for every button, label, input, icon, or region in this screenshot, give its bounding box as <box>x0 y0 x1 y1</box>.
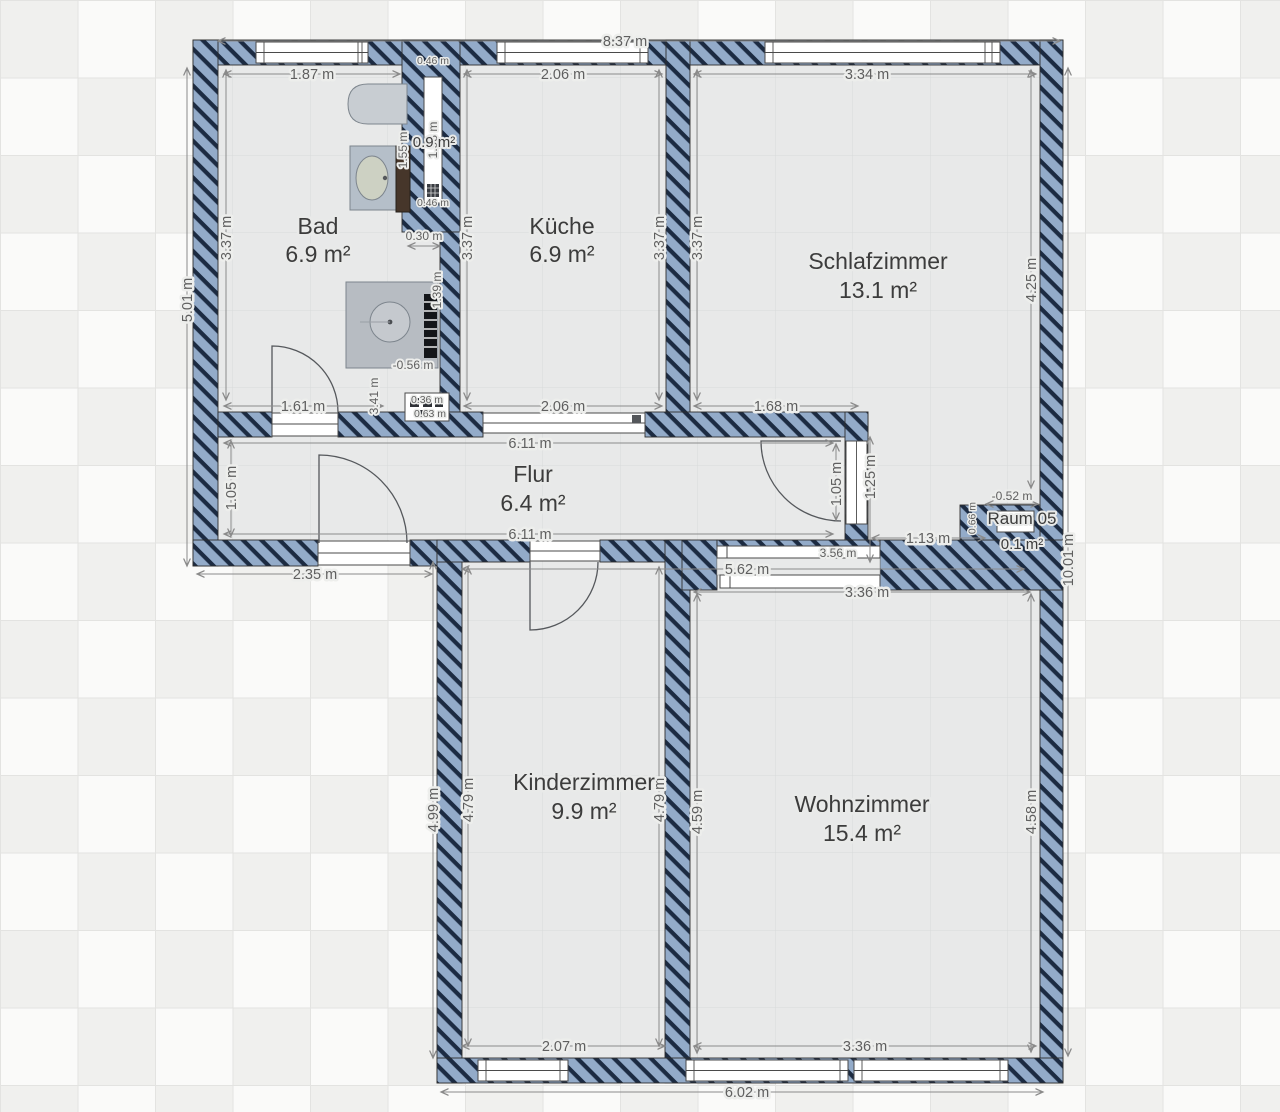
wall-left[interactable] <box>193 40 218 566</box>
dim-shaft-bottom: 0.46 m <box>417 197 449 209</box>
dim-schlaf-right: 4.25 m <box>1024 258 1040 302</box>
dim-kueche-right: 3.37 m <box>652 216 668 260</box>
wall-entry-1[interactable] <box>193 540 318 566</box>
dim-niche-a: 0.36 m <box>411 394 443 406</box>
washbasin[interactable] <box>350 146 398 210</box>
room-schlafzimmer-name: Schlafzimmer <box>808 248 948 274</box>
room-schlafzimmer-area: 13.1 m² <box>839 277 917 303</box>
dim-niche-offset: 0.30 m <box>406 229 443 243</box>
dim-overall-right: 10.01 m <box>1061 534 1077 586</box>
opening-entrance[interactable] <box>318 541 410 565</box>
dim-bad-left: 3.37 m <box>219 216 235 260</box>
wall-flur-top-1[interactable] <box>218 412 272 437</box>
dim-kinder-outer: 4.99 m <box>426 788 442 832</box>
dim-bad-niche: 3.41 m <box>367 378 381 415</box>
dim-raum05-left: 0.66 m <box>967 502 979 534</box>
dim-wohn-left: 4.59 m <box>690 790 706 834</box>
dim-kueche-left: 3.37 m <box>460 216 476 260</box>
floorplan-canvas: 8.37 m 1.87 m 2.06 m 3.34 m 1.61 m 2.06 … <box>0 0 1280 1112</box>
dim-schlaf-top: 3.34 m <box>845 67 889 83</box>
dim-raum05-top: -0.52 m <box>992 489 1033 503</box>
dim-bad-bottom: 1.61 m <box>281 399 325 415</box>
vent-grille-icon <box>427 184 439 197</box>
dim-slider: 3.56 m <box>820 546 857 560</box>
room-kueche-name: Küche <box>529 213 594 239</box>
room-wohnzimmer-area: 15.4 m² <box>823 820 901 846</box>
dim-slider-total: 5.62 m <box>725 562 769 578</box>
dim-right-pass: 1.13 m <box>906 531 950 547</box>
dim-entry-left: 2.35 m <box>293 567 337 583</box>
wall-flur-top-3[interactable] <box>645 412 868 437</box>
dim-kueche-bottom: 2.06 m <box>541 399 585 415</box>
room-raum05-area: 0.1 m² <box>1001 536 1044 553</box>
room-wohnzimmer-name: Wohnzimmer <box>794 791 929 817</box>
dim-kueche-top: 2.06 m <box>541 67 585 83</box>
dim-bad-fixture: 1.55 m <box>396 132 410 169</box>
room-schacht-area: 0.9 m² <box>413 134 456 151</box>
dim-kinder-left: 4.79 m <box>461 778 477 822</box>
window-kueche-bottom[interactable] <box>483 413 645 433</box>
floorplan-drawing: 8.37 m 1.87 m 2.06 m 3.34 m 1.61 m 2.06 … <box>0 0 1280 1112</box>
wall-wohn-top-left[interactable] <box>682 540 717 590</box>
dim-wohn-right: 4.58 m <box>1024 790 1040 834</box>
dim-wohn-bottom: 3.36 m <box>843 1039 887 1055</box>
dim-schlaf-left: 3.37 m <box>690 216 706 260</box>
window-wohnzimmer-2[interactable] <box>854 1060 1008 1081</box>
dim-bad-top: 1.87 m <box>290 67 334 83</box>
dim-overall-top: 8.37 m <box>603 34 647 50</box>
room-flur-name: Flur <box>513 461 553 487</box>
wall-kueche-schlaf[interactable] <box>666 40 690 437</box>
dim-kinder-bottom: 2.07 m <box>542 1039 586 1055</box>
room-flur-area: 6.4 m² <box>500 490 566 516</box>
opening-kinderzimmer[interactable] <box>530 541 600 561</box>
window-bad[interactable] <box>256 42 368 63</box>
dim-shower-width: -0.56 m <box>393 358 434 372</box>
bathtub[interactable] <box>348 84 407 124</box>
dim-wohn-top: 3.36 m <box>845 585 889 601</box>
dim-niche-b: 0.63 m <box>414 408 446 420</box>
dim-overall-bottom: 6.02 m <box>725 1085 769 1101</box>
dim-flur-bottom: 6.11 m <box>508 527 551 543</box>
window-schlafzimmer[interactable] <box>765 42 1000 63</box>
window-kinderzimmer[interactable] <box>478 1060 568 1081</box>
room-bad-area: 6.9 m² <box>285 241 351 267</box>
dim-outer-left: 5.01 m <box>180 278 196 322</box>
dim-niche-height: 1.39 m <box>430 272 444 309</box>
dim-flur-door: 1.25 m <box>863 455 879 499</box>
window-wohnzimmer-1[interactable] <box>686 1060 848 1081</box>
room-raum05-name: Raum 05 <box>988 509 1057 528</box>
wall-bad-kueche[interactable] <box>440 232 460 412</box>
dim-flur-left: 1.05 m <box>224 466 240 510</box>
dim-schlaf-bottom: 1.68 m <box>754 399 798 415</box>
room-bad-name: Bad <box>298 213 339 239</box>
dim-flur-top: 6.11 m <box>508 436 551 452</box>
room-schacht[interactable]: 0.9 m² <box>413 134 456 151</box>
room-kueche-area: 6.9 m² <box>529 241 595 267</box>
room-kinderzimmer-area: 9.9 m² <box>551 798 617 824</box>
wall-kinder-top-1[interactable] <box>437 540 530 562</box>
dim-flur-right: 1.05 m <box>829 462 845 506</box>
opening-bad-door[interactable] <box>272 413 338 436</box>
room-kinderzimmer-name: Kinderzimmer <box>513 769 655 795</box>
dim-shaft-top: 0.46 m <box>417 55 449 67</box>
wall-kinder-wohn[interactable] <box>665 540 690 1083</box>
